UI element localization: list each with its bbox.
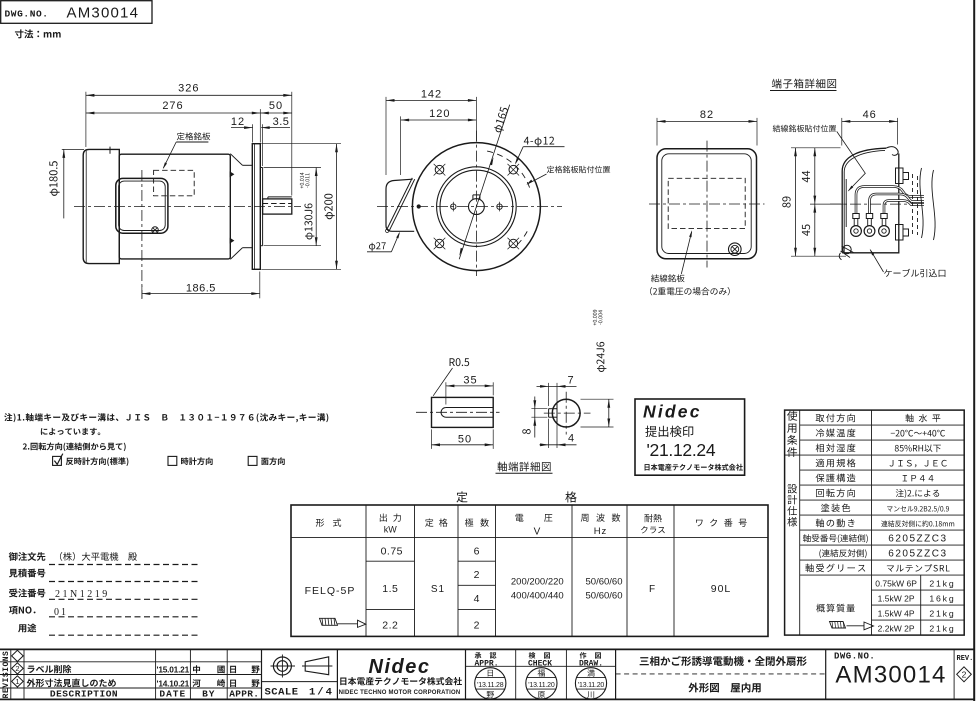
- svg-text:46: 46: [863, 109, 877, 121]
- svg-text:186.5: 186.5: [186, 283, 216, 295]
- svg-text:DWG.NO.: DWG.NO.: [834, 652, 875, 662]
- svg-text:AM30014: AM30014: [67, 5, 140, 22]
- svg-text:12: 12: [231, 116, 245, 128]
- svg-text:200/200/220: 200/200/220: [511, 577, 564, 588]
- svg-text:CHECK: CHECK: [528, 659, 552, 668]
- svg-text:NIDEC TECHNO MOTOR CORPORATION: NIDEC TECHNO MOTOR CORPORATION: [339, 690, 461, 696]
- svg-text:7: 7: [567, 375, 573, 387]
- svg-text:2: 2: [474, 569, 480, 581]
- svg-text:DATE: DATE: [159, 689, 186, 700]
- svg-text:3.5: 3.5: [273, 116, 290, 128]
- svg-text:82: 82: [700, 109, 714, 121]
- svg-text:1/4: 1/4: [309, 687, 334, 699]
- svg-text:326: 326: [178, 83, 199, 95]
- svg-text:1.5kW 4P: 1.5kW 4P: [878, 608, 915, 618]
- svg-text:kW: kW: [384, 525, 398, 535]
- svg-text:BY: BY: [202, 689, 215, 700]
- svg-text:REV.: REV.: [957, 655, 974, 663]
- svg-text:'15.01.21: '15.01.21: [157, 665, 190, 675]
- svg-text:4: 4: [474, 593, 480, 605]
- svg-text:S1: S1: [431, 584, 445, 595]
- svg-text:'21.12.24: '21.12.24: [647, 440, 716, 460]
- svg-text:90L: 90L: [711, 583, 732, 595]
- svg-text:1.5kW 2P: 1.5kW 2P: [878, 593, 915, 603]
- svg-text:1: 1: [15, 677, 19, 686]
- svg-text:2.2kW 2P: 2.2kW 2P: [878, 623, 915, 633]
- svg-text:01: 01: [54, 607, 68, 618]
- svg-text:Nidec: Nidec: [643, 402, 702, 422]
- svg-text:4: 4: [568, 433, 574, 445]
- svg-text:50/60/60: 50/60/60: [586, 577, 623, 588]
- svg-text:DRAW.: DRAW.: [579, 659, 603, 668]
- svg-text:0.75kW 6P: 0.75kW 6P: [875, 578, 917, 588]
- svg-text:6205ZZC3: 6205ZZC3: [888, 548, 947, 559]
- svg-text:276: 276: [162, 100, 183, 112]
- svg-text:APPR.: APPR.: [229, 689, 259, 700]
- svg-text:F: F: [649, 584, 655, 595]
- svg-text:DWG.NO.: DWG.NO.: [5, 9, 49, 20]
- svg-text:FELQ-5P: FELQ-5P: [305, 585, 356, 597]
- svg-text:V: V: [534, 527, 541, 538]
- svg-text:2.2: 2.2: [382, 620, 398, 632]
- svg-text:Hz: Hz: [594, 526, 608, 537]
- svg-text:'14.10.21: '14.10.21: [157, 678, 190, 688]
- svg-text:0.75: 0.75: [381, 546, 403, 558]
- svg-text:DESCRIPTION: DESCRIPTION: [50, 689, 118, 700]
- svg-text:21N1219: 21N1219: [55, 589, 110, 600]
- svg-text:'13.11.20: '13.11.20: [578, 682, 605, 689]
- svg-text:21kg: 21kg: [929, 623, 955, 633]
- svg-text:2: 2: [15, 664, 19, 673]
- svg-text:SCALE: SCALE: [265, 687, 299, 699]
- svg-text:35: 35: [463, 374, 477, 386]
- svg-text:120: 120: [429, 108, 450, 120]
- svg-text:Nidec: Nidec: [369, 656, 431, 678]
- svg-text:APPR.: APPR.: [474, 659, 498, 668]
- svg-text:16kg: 16kg: [929, 593, 955, 603]
- svg-text:400/400/440: 400/400/440: [511, 591, 564, 602]
- svg-text:AM30014: AM30014: [835, 662, 946, 689]
- svg-text:50: 50: [458, 433, 472, 445]
- svg-text:142: 142: [421, 88, 442, 100]
- svg-text:21kg: 21kg: [929, 608, 955, 618]
- svg-text:21kg: 21kg: [929, 578, 955, 588]
- svg-text:REVISIONS: REVISIONS: [2, 651, 11, 699]
- svg-text:6205ZZC3: 6205ZZC3: [888, 533, 947, 544]
- svg-text:'13.11.28: '13.11.28: [477, 682, 504, 689]
- svg-text:6: 6: [474, 546, 480, 558]
- svg-text:1.5: 1.5: [382, 583, 398, 595]
- svg-text:50: 50: [269, 100, 283, 112]
- svg-text:2: 2: [962, 669, 967, 679]
- svg-text:50/60/60: 50/60/60: [586, 591, 623, 602]
- svg-text:2: 2: [474, 620, 480, 632]
- svg-text:'13.11.20: '13.11.20: [528, 682, 555, 689]
